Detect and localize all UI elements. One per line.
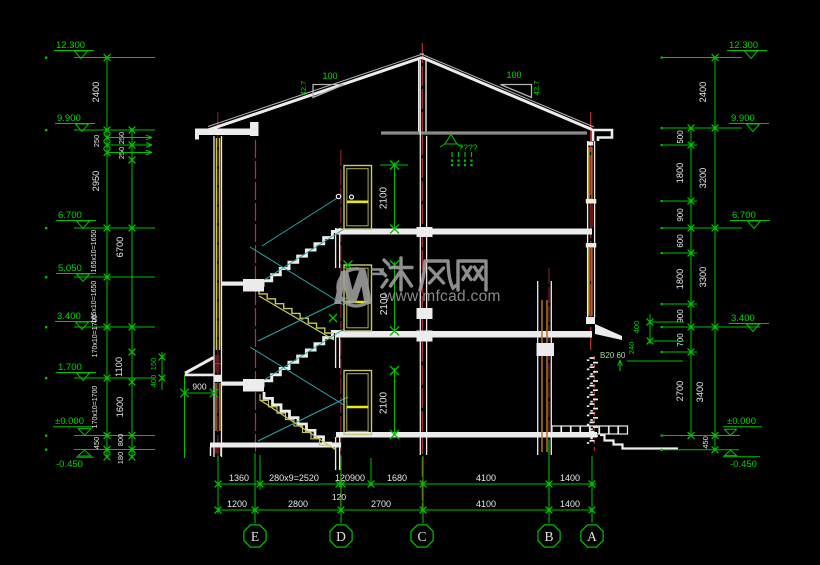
svg-text:1800: 1800 (675, 163, 685, 184)
svg-text:2400: 2400 (91, 82, 101, 103)
svg-text:±0.000: ±0.000 (55, 416, 84, 427)
svg-text:D: D (336, 529, 346, 544)
svg-text:900: 900 (192, 382, 206, 392)
svg-text:2400: 2400 (698, 82, 708, 103)
svg-text:C: C (417, 529, 426, 544)
svg-text:3300: 3300 (698, 267, 708, 288)
svg-text:700: 700 (676, 333, 685, 347)
svg-text:42.7: 42.7 (299, 81, 308, 96)
svg-text:2700: 2700 (371, 499, 391, 509)
svg-text:280x9=2520: 280x9=2520 (269, 473, 319, 483)
svg-text:-0.450: -0.450 (56, 459, 83, 470)
svg-text:5.050: 5.050 (58, 263, 82, 274)
svg-text:4100: 4100 (476, 473, 496, 483)
svg-text:400: 400 (632, 321, 641, 334)
svg-text:600: 600 (676, 234, 685, 248)
svg-text:3.400: 3.400 (57, 311, 81, 322)
svg-text:3400: 3400 (695, 382, 705, 403)
svg-text:100: 100 (506, 70, 521, 80)
svg-text:3.400: 3.400 (731, 313, 755, 324)
svg-text:170x10=1700: 170x10=1700 (92, 315, 99, 358)
svg-text:900: 900 (676, 208, 685, 222)
svg-text:500: 500 (676, 130, 685, 144)
svg-text:42.7: 42.7 (532, 81, 541, 96)
svg-text:180: 180 (116, 452, 125, 465)
svg-text:12.300: 12.300 (729, 40, 758, 51)
svg-text:900: 900 (676, 309, 685, 323)
svg-text:2950: 2950 (91, 171, 101, 192)
svg-text:12.300: 12.300 (56, 40, 85, 51)
svg-text:B: B (544, 529, 553, 544)
svg-text:1400: 1400 (560, 499, 580, 509)
svg-text:240: 240 (627, 342, 636, 355)
svg-text:2100: 2100 (379, 391, 390, 414)
svg-text:170x10=1700: 170x10=1700 (92, 386, 99, 429)
svg-text:B20 60: B20 60 (600, 351, 626, 360)
svg-text:1360: 1360 (229, 473, 249, 483)
svg-text:1200: 1200 (227, 499, 247, 509)
svg-text:6700: 6700 (115, 237, 125, 258)
svg-text:2100: 2100 (379, 186, 390, 209)
svg-text:2700: 2700 (675, 381, 685, 402)
svg-text:3200: 3200 (698, 168, 708, 189)
svg-text:4100: 4100 (476, 499, 496, 509)
svg-text:100: 100 (322, 71, 337, 81)
svg-text:150: 150 (149, 358, 158, 371)
svg-text:1400: 1400 (560, 473, 580, 483)
svg-text:1100: 1100 (114, 357, 124, 377)
svg-text:A: A (587, 529, 597, 544)
svg-text:450: 450 (701, 436, 710, 449)
svg-text:1.700: 1.700 (58, 362, 82, 373)
svg-text:120: 120 (332, 492, 346, 502)
svg-text:165x10=1650: 165x10=1650 (91, 230, 98, 273)
svg-text:450: 450 (92, 437, 101, 450)
svg-text:1680: 1680 (387, 473, 407, 483)
svg-text:400: 400 (149, 375, 158, 388)
svg-text:www.mfcad.com: www.mfcad.com (383, 288, 501, 305)
svg-text:2800: 2800 (288, 499, 308, 509)
svg-text:1600: 1600 (115, 397, 125, 418)
svg-text:800: 800 (116, 434, 125, 447)
svg-text:9.900: 9.900 (731, 113, 755, 124)
svg-text:-0.450: -0.450 (730, 459, 757, 470)
svg-text:6.700: 6.700 (732, 210, 756, 221)
svg-text:????: ???? (459, 143, 478, 153)
svg-text:6.700: 6.700 (58, 210, 82, 221)
svg-text:±0.000: ±0.000 (727, 416, 756, 427)
svg-text:250: 250 (92, 135, 101, 148)
svg-text:9.900: 9.900 (57, 113, 81, 124)
svg-text:E: E (251, 529, 259, 544)
svg-text:1800: 1800 (675, 269, 685, 290)
svg-text:120900: 120900 (335, 473, 365, 483)
